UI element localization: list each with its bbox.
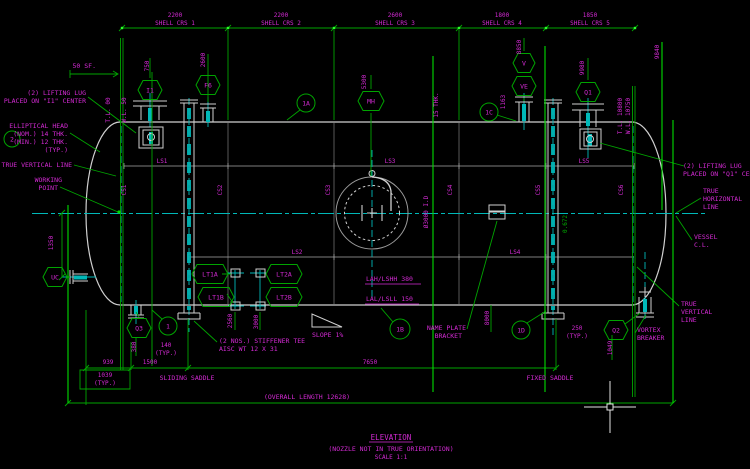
hex-tag-label-i1: I1 bbox=[146, 86, 154, 94]
text-cs1: CS1 bbox=[121, 184, 128, 195]
shell-crs-value-2: 2200 bbox=[274, 12, 289, 19]
text-head-note-1: ELLIPTICAL HEAD bbox=[9, 122, 68, 130]
hex-tag-label-q1: Q1 bbox=[584, 88, 592, 96]
text-ls2: LS2 bbox=[292, 249, 303, 256]
balloon-label-1: 1 bbox=[166, 322, 170, 330]
text-lah: LAH/LSHH 380 bbox=[366, 275, 413, 283]
text-cs5: CS5 bbox=[535, 184, 542, 195]
hex-tag-label-lt2b: LT2B bbox=[276, 293, 292, 301]
text-dim-1049: 1049 bbox=[607, 340, 614, 355]
text-lug-right-1: (2) LIFTING LUG bbox=[683, 162, 742, 170]
hex-tag-label-v: V bbox=[522, 59, 526, 67]
text-dim-250b: (TYP.) bbox=[566, 333, 588, 340]
hex-tag-label-f6: F6 bbox=[204, 81, 212, 89]
annotation-texts: (2) LIFTING LUGPLACED ON "I1" CENTERELLI… bbox=[2, 39, 750, 461]
text-dim-140b: (TYP.) bbox=[155, 350, 177, 357]
shell-crs-value-1: 2200 bbox=[168, 12, 183, 19]
text-cs2: CS2 bbox=[217, 184, 224, 195]
text-nameplate-2: BRACKET bbox=[435, 332, 462, 340]
text-dim-1350: 1350 bbox=[48, 235, 55, 250]
text-ls5: LS5 bbox=[579, 158, 590, 165]
text-sliding-saddle: SLIDING SADDLE bbox=[160, 374, 215, 382]
nozzle-tags: I1F6MHVVEQ1UCQ3Q2LT1ALT1BLT2ALT2B bbox=[43, 54, 628, 340]
cad-viewport[interactable]: I1F6MHVVEQ1UCQ3Q2LT1ALT1BLT2ALT2B 21A11B… bbox=[0, 0, 750, 469]
text-dim-1500: 1500 bbox=[143, 359, 158, 366]
text-cs3: CS3 bbox=[325, 184, 332, 195]
balloon-label-1d: 1D bbox=[517, 326, 525, 334]
text-nameplate-1: NAME PLATE bbox=[427, 324, 466, 332]
text-lug-right-2: PLACED ON "Q1" CENTER bbox=[683, 170, 750, 178]
text-true-horiz-1: TRUE bbox=[703, 187, 719, 195]
balloon-label-1c: 1C bbox=[485, 108, 493, 116]
text-true-vertical-left: TRUE VERTICAL LINE bbox=[2, 161, 73, 169]
text-cs4: CS4 bbox=[447, 184, 454, 195]
text-stiffener-2: AISC WT 12 X 31 bbox=[219, 345, 278, 353]
shell-crs-label-5: SHELL CRS 5 bbox=[570, 20, 610, 27]
balloon-label-1b: 1B bbox=[396, 325, 404, 333]
text-lal: LAL/LSLL 150 bbox=[366, 295, 413, 303]
text-lug-left-2: PLACED ON "I1" CENTER bbox=[4, 97, 86, 105]
dimension-lines bbox=[59, 25, 701, 406]
text-true-vert-r2: VERTICAL bbox=[681, 308, 712, 316]
hex-tag-label-q2: Q2 bbox=[612, 326, 620, 334]
text-working-1: WORKING bbox=[35, 176, 62, 184]
text-dim-2560: 2560 bbox=[227, 313, 234, 328]
name-plate-bracket bbox=[489, 205, 505, 219]
hex-tag-label-uc: UC bbox=[51, 273, 59, 281]
text-dim-380: 380 bbox=[131, 341, 138, 352]
shell-crs-value-3: 2600 bbox=[388, 12, 403, 19]
text-id-3000: Ø3000 I.D bbox=[423, 195, 430, 228]
shell-course-dims: 2200SHELL CRS 12200SHELL CRS 22600SHELL … bbox=[155, 12, 610, 27]
text-true-vert-r3: LINE bbox=[681, 316, 697, 324]
item-balloons: 21A11B1C1D bbox=[4, 94, 530, 339]
text-true-horiz-2: HORIZONTAL bbox=[703, 195, 742, 203]
hex-tag-label-ve: VE bbox=[520, 82, 528, 90]
text-wl-right: W.L. 10750 bbox=[625, 98, 632, 135]
text-true-vert-r1: TRUE bbox=[681, 300, 697, 308]
text-vessel-cl-2: C.L. bbox=[694, 241, 710, 249]
text-dim-750: 750 bbox=[144, 60, 151, 71]
text-tl-right: T.L. 10800 bbox=[617, 98, 624, 135]
working-point bbox=[117, 210, 120, 213]
shell-crs-value-4: 1800 bbox=[495, 12, 510, 19]
text-thk-15: 15 THK. bbox=[433, 92, 440, 117]
text-working-2: POINT bbox=[38, 184, 58, 192]
text-dim-5300: 5300 bbox=[361, 74, 368, 89]
text-sf-50: 50 SF. bbox=[73, 62, 96, 70]
text-dim-2600: 2600 bbox=[200, 52, 207, 67]
hex-tag-label-lt2a: LT2A bbox=[276, 270, 292, 278]
shell-crs-label-1: SHELL CRS 1 bbox=[155, 20, 195, 27]
text-dim-1039b: (TYP.) bbox=[94, 380, 116, 387]
shell-crs-label-3: SHELL CRS 3 bbox=[375, 20, 415, 27]
shell-crs-label-2: SHELL CRS 2 bbox=[261, 20, 301, 27]
text-vessel-cl-1: VESSEL bbox=[694, 233, 718, 241]
text-dim-1039a: 1039 bbox=[98, 372, 113, 379]
text-lug-left-1: (2) LIFTING LUG bbox=[27, 89, 86, 97]
shell-crs-value-5: 1850 bbox=[583, 12, 598, 19]
text-vortex-1: VORTEX bbox=[637, 326, 661, 334]
text-dim-7650: 7650 bbox=[363, 359, 378, 366]
text-dim-0672: 0.672 bbox=[562, 215, 569, 233]
text-overall-length: (OVERALL LENGTH 12628) bbox=[264, 393, 350, 401]
text-wl-left: W.L. 50 bbox=[121, 97, 128, 123]
text-dim-8000: 8000 bbox=[484, 310, 491, 325]
text-head-note-2: (NOM.) 14 THK. bbox=[13, 130, 68, 138]
hex-tag-label-mh: MH bbox=[367, 97, 375, 105]
text-dim-250a: 250 bbox=[572, 325, 583, 332]
text-fixed-saddle: FIXED SADDLE bbox=[527, 374, 574, 382]
text-dim-9840: 9840 bbox=[654, 44, 661, 59]
text-head-note-3: (MIN.) 12 THK. bbox=[13, 138, 68, 146]
text-ls4: LS4 bbox=[510, 249, 521, 256]
text-vortex-2: BREAKER bbox=[637, 334, 664, 342]
text-head-note-4: (TYP.) bbox=[45, 146, 68, 154]
text-slope: SLOPE 1% bbox=[312, 331, 343, 339]
text-scale: SCALE 1:1 bbox=[375, 454, 408, 461]
text-dim-140a: 140 bbox=[161, 342, 172, 349]
text-ls1: LS1 bbox=[157, 158, 168, 165]
text-dim-939: 939 bbox=[103, 359, 114, 366]
hex-tag-label-q3: Q3 bbox=[135, 324, 143, 332]
hex-tag-label-lt1b: LT1B bbox=[208, 293, 224, 301]
text-subtitle: (NOZZLE NOT IN TRUE ORIENTATION) bbox=[328, 445, 453, 453]
cad-canvas[interactable]: I1F6MHVVEQ1UCQ3Q2LT1ALT1BLT2ALT2B 21A11B… bbox=[0, 0, 750, 469]
hex-tag-label-lt1a: LT1A bbox=[202, 270, 218, 278]
text-cs6: CS6 bbox=[618, 184, 625, 195]
text-ls3: LS3 bbox=[385, 158, 396, 165]
text-title: ELEVATION bbox=[371, 433, 412, 442]
crosshair-cursor[interactable] bbox=[584, 381, 636, 433]
slope-symbol bbox=[312, 314, 342, 327]
text-stiffener-1: (2 NOS.) STIFFENER TEE bbox=[219, 337, 305, 345]
balloon-label-1a: 1A bbox=[302, 99, 310, 107]
text-true-horiz-3: LINE bbox=[703, 203, 719, 211]
text-tl-left: T.L. 00 bbox=[105, 97, 112, 123]
text-dim-8850: 8850 bbox=[516, 39, 523, 54]
text-dim-9980: 9980 bbox=[579, 60, 586, 75]
text-dim-3000: 3000 bbox=[253, 314, 260, 329]
text-dim-1163: 1163 bbox=[500, 94, 507, 109]
shell-crs-label-4: SHELL CRS 4 bbox=[482, 20, 522, 27]
